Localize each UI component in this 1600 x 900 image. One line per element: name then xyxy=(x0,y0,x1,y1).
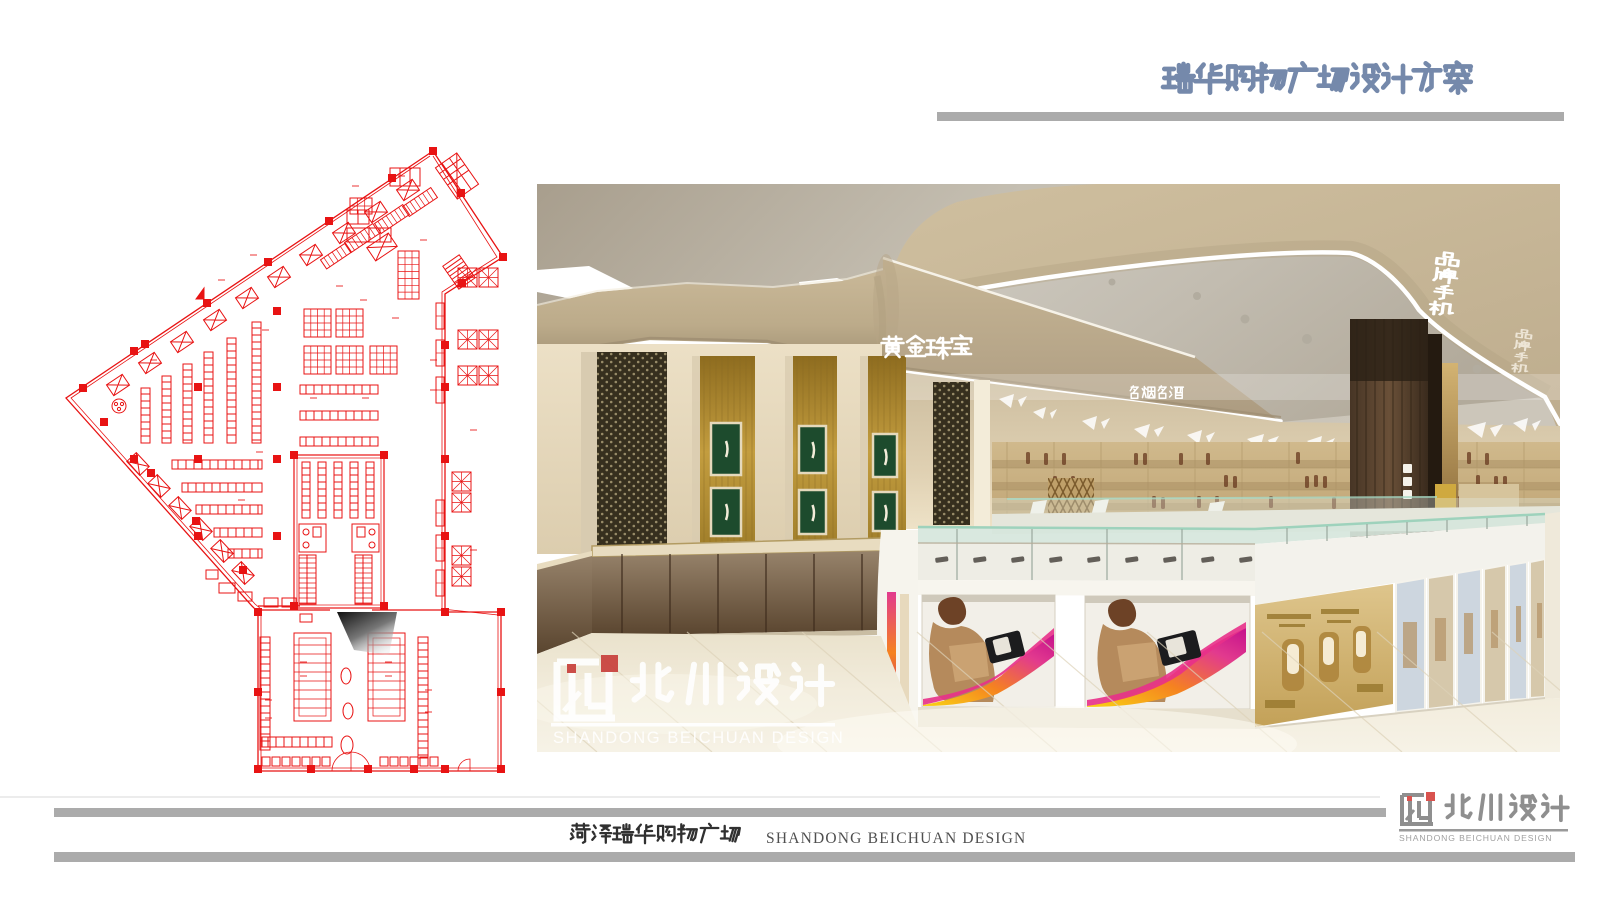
svg-text:SHANDONG BEICHUAN DESIGN: SHANDONG BEICHUAN DESIGN xyxy=(1399,833,1552,843)
svg-text:SHANDONG BEICHUAN DESIGN: SHANDONG BEICHUAN DESIGN xyxy=(766,830,1026,847)
svg-text:SHANDONG BEICHUAN DESIGN: SHANDONG BEICHUAN DESIGN xyxy=(553,729,844,747)
